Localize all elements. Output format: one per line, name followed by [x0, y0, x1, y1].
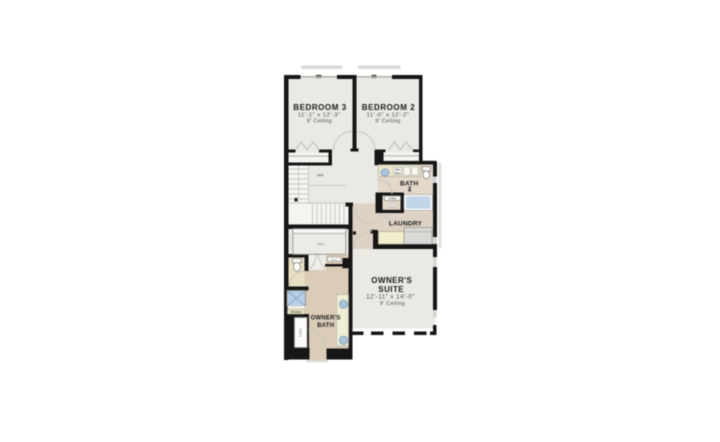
svg-text:Door: Door — [331, 258, 337, 262]
svg-text:OWNER'S: OWNER'S — [311, 316, 341, 322]
svg-text:WIC: WIC — [317, 242, 325, 247]
svg-text:2: 2 — [408, 186, 412, 193]
svg-text:BEDROOM 3: BEDROOM 3 — [293, 103, 346, 112]
svg-text:Door: Door — [389, 204, 395, 208]
svg-text:Shower: Shower — [291, 310, 303, 314]
svg-text:SUITE: SUITE — [378, 285, 404, 294]
svg-text:Linen: Linen — [299, 328, 303, 336]
svg-text:Base: Base — [395, 171, 402, 175]
svg-text:12'-11" x 14'-0": 12'-11" x 14'-0" — [366, 295, 415, 301]
svg-text:Linen: Linen — [389, 197, 397, 201]
svg-text:9' Ceiling: 9' Ceiling — [375, 119, 400, 125]
svg-text:BEDROOM 2: BEDROOM 2 — [362, 103, 415, 112]
svg-text:BATH: BATH — [317, 323, 334, 329]
svg-text:9' Ceiling: 9' Ceiling — [380, 301, 405, 307]
svg-text:OWNER'S: OWNER'S — [371, 276, 412, 285]
svg-text:LAUNDRY: LAUNDRY — [389, 221, 423, 228]
svg-text:9' Ceiling: 9' Ceiling — [307, 119, 332, 125]
